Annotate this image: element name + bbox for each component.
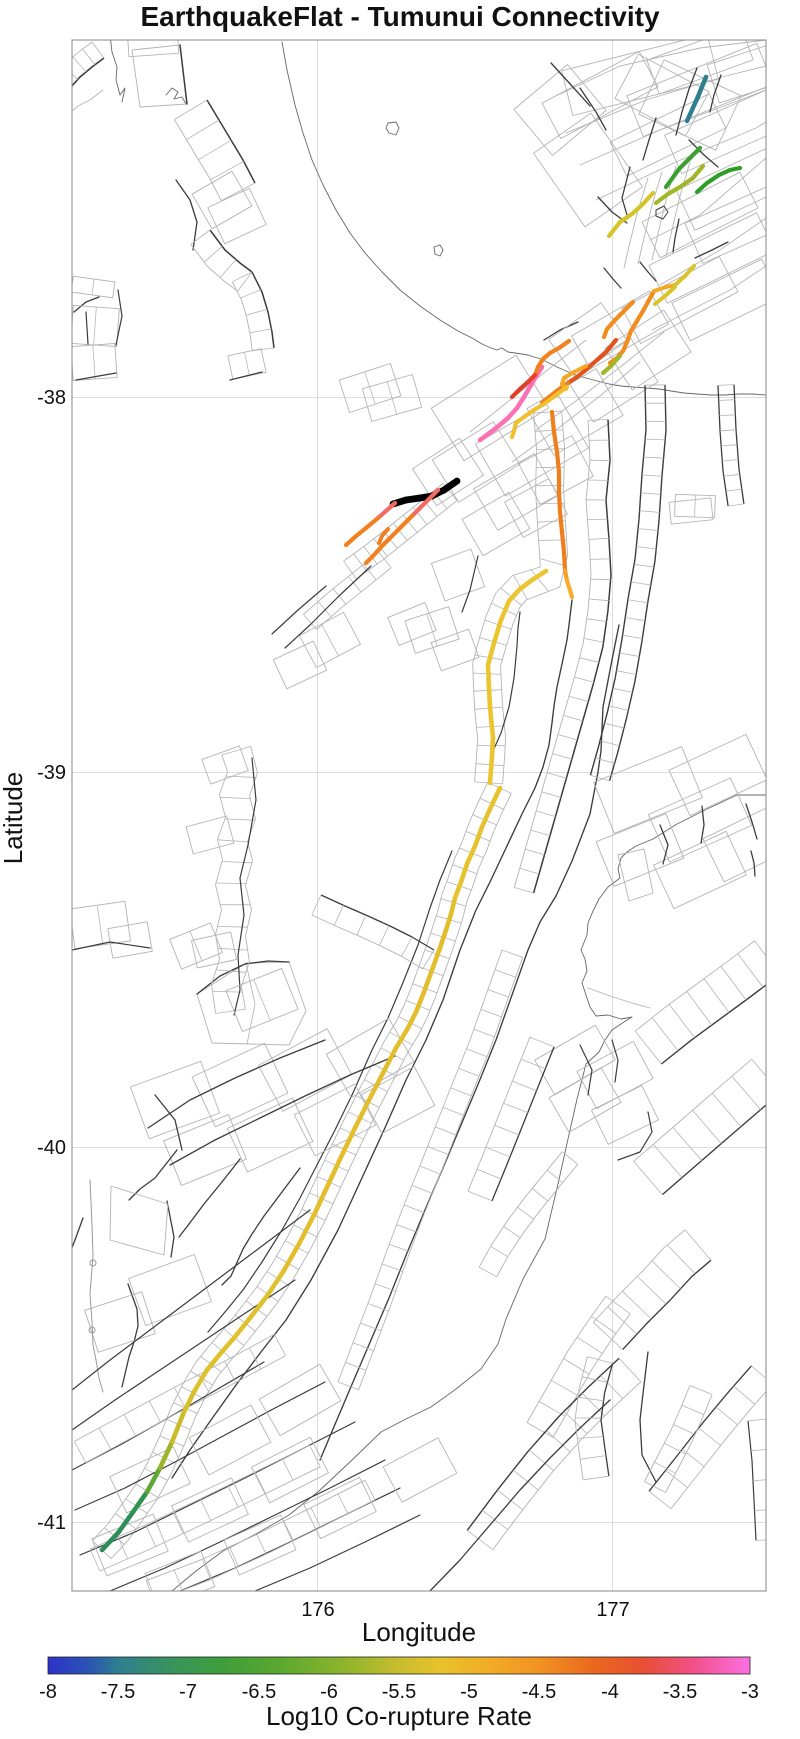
svg-text:-4: -4: [601, 1681, 619, 1703]
svg-text:Longitude: Longitude: [362, 1617, 476, 1647]
svg-text:-7: -7: [179, 1681, 197, 1703]
svg-text:Log10 Co-rupture Rate: Log10 Co-rupture Rate: [266, 1701, 532, 1731]
svg-text:EarthquakeFlat - Tumunui Conne: EarthquakeFlat - Tumunui Connectivity: [140, 1, 660, 32]
svg-text:Latitude: Latitude: [0, 772, 28, 865]
svg-text:-38: -38: [37, 387, 66, 409]
svg-text:177: 177: [596, 1599, 629, 1621]
svg-text:-40: -40: [37, 1137, 66, 1159]
svg-text:-3.5: -3.5: [663, 1681, 697, 1703]
svg-text:-3: -3: [741, 1681, 759, 1703]
svg-text:-39: -39: [37, 762, 66, 784]
svg-text:-5: -5: [460, 1681, 478, 1703]
svg-text:-8: -8: [39, 1681, 57, 1703]
svg-text:176: 176: [301, 1599, 334, 1621]
svg-text:-6: -6: [320, 1681, 338, 1703]
svg-text:-7.5: -7.5: [101, 1681, 135, 1703]
svg-text:-4.5: -4.5: [522, 1681, 556, 1703]
svg-text:-41: -41: [37, 1512, 66, 1534]
svg-text:-6.5: -6.5: [242, 1681, 276, 1703]
svg-text:-5.5: -5.5: [382, 1681, 416, 1703]
